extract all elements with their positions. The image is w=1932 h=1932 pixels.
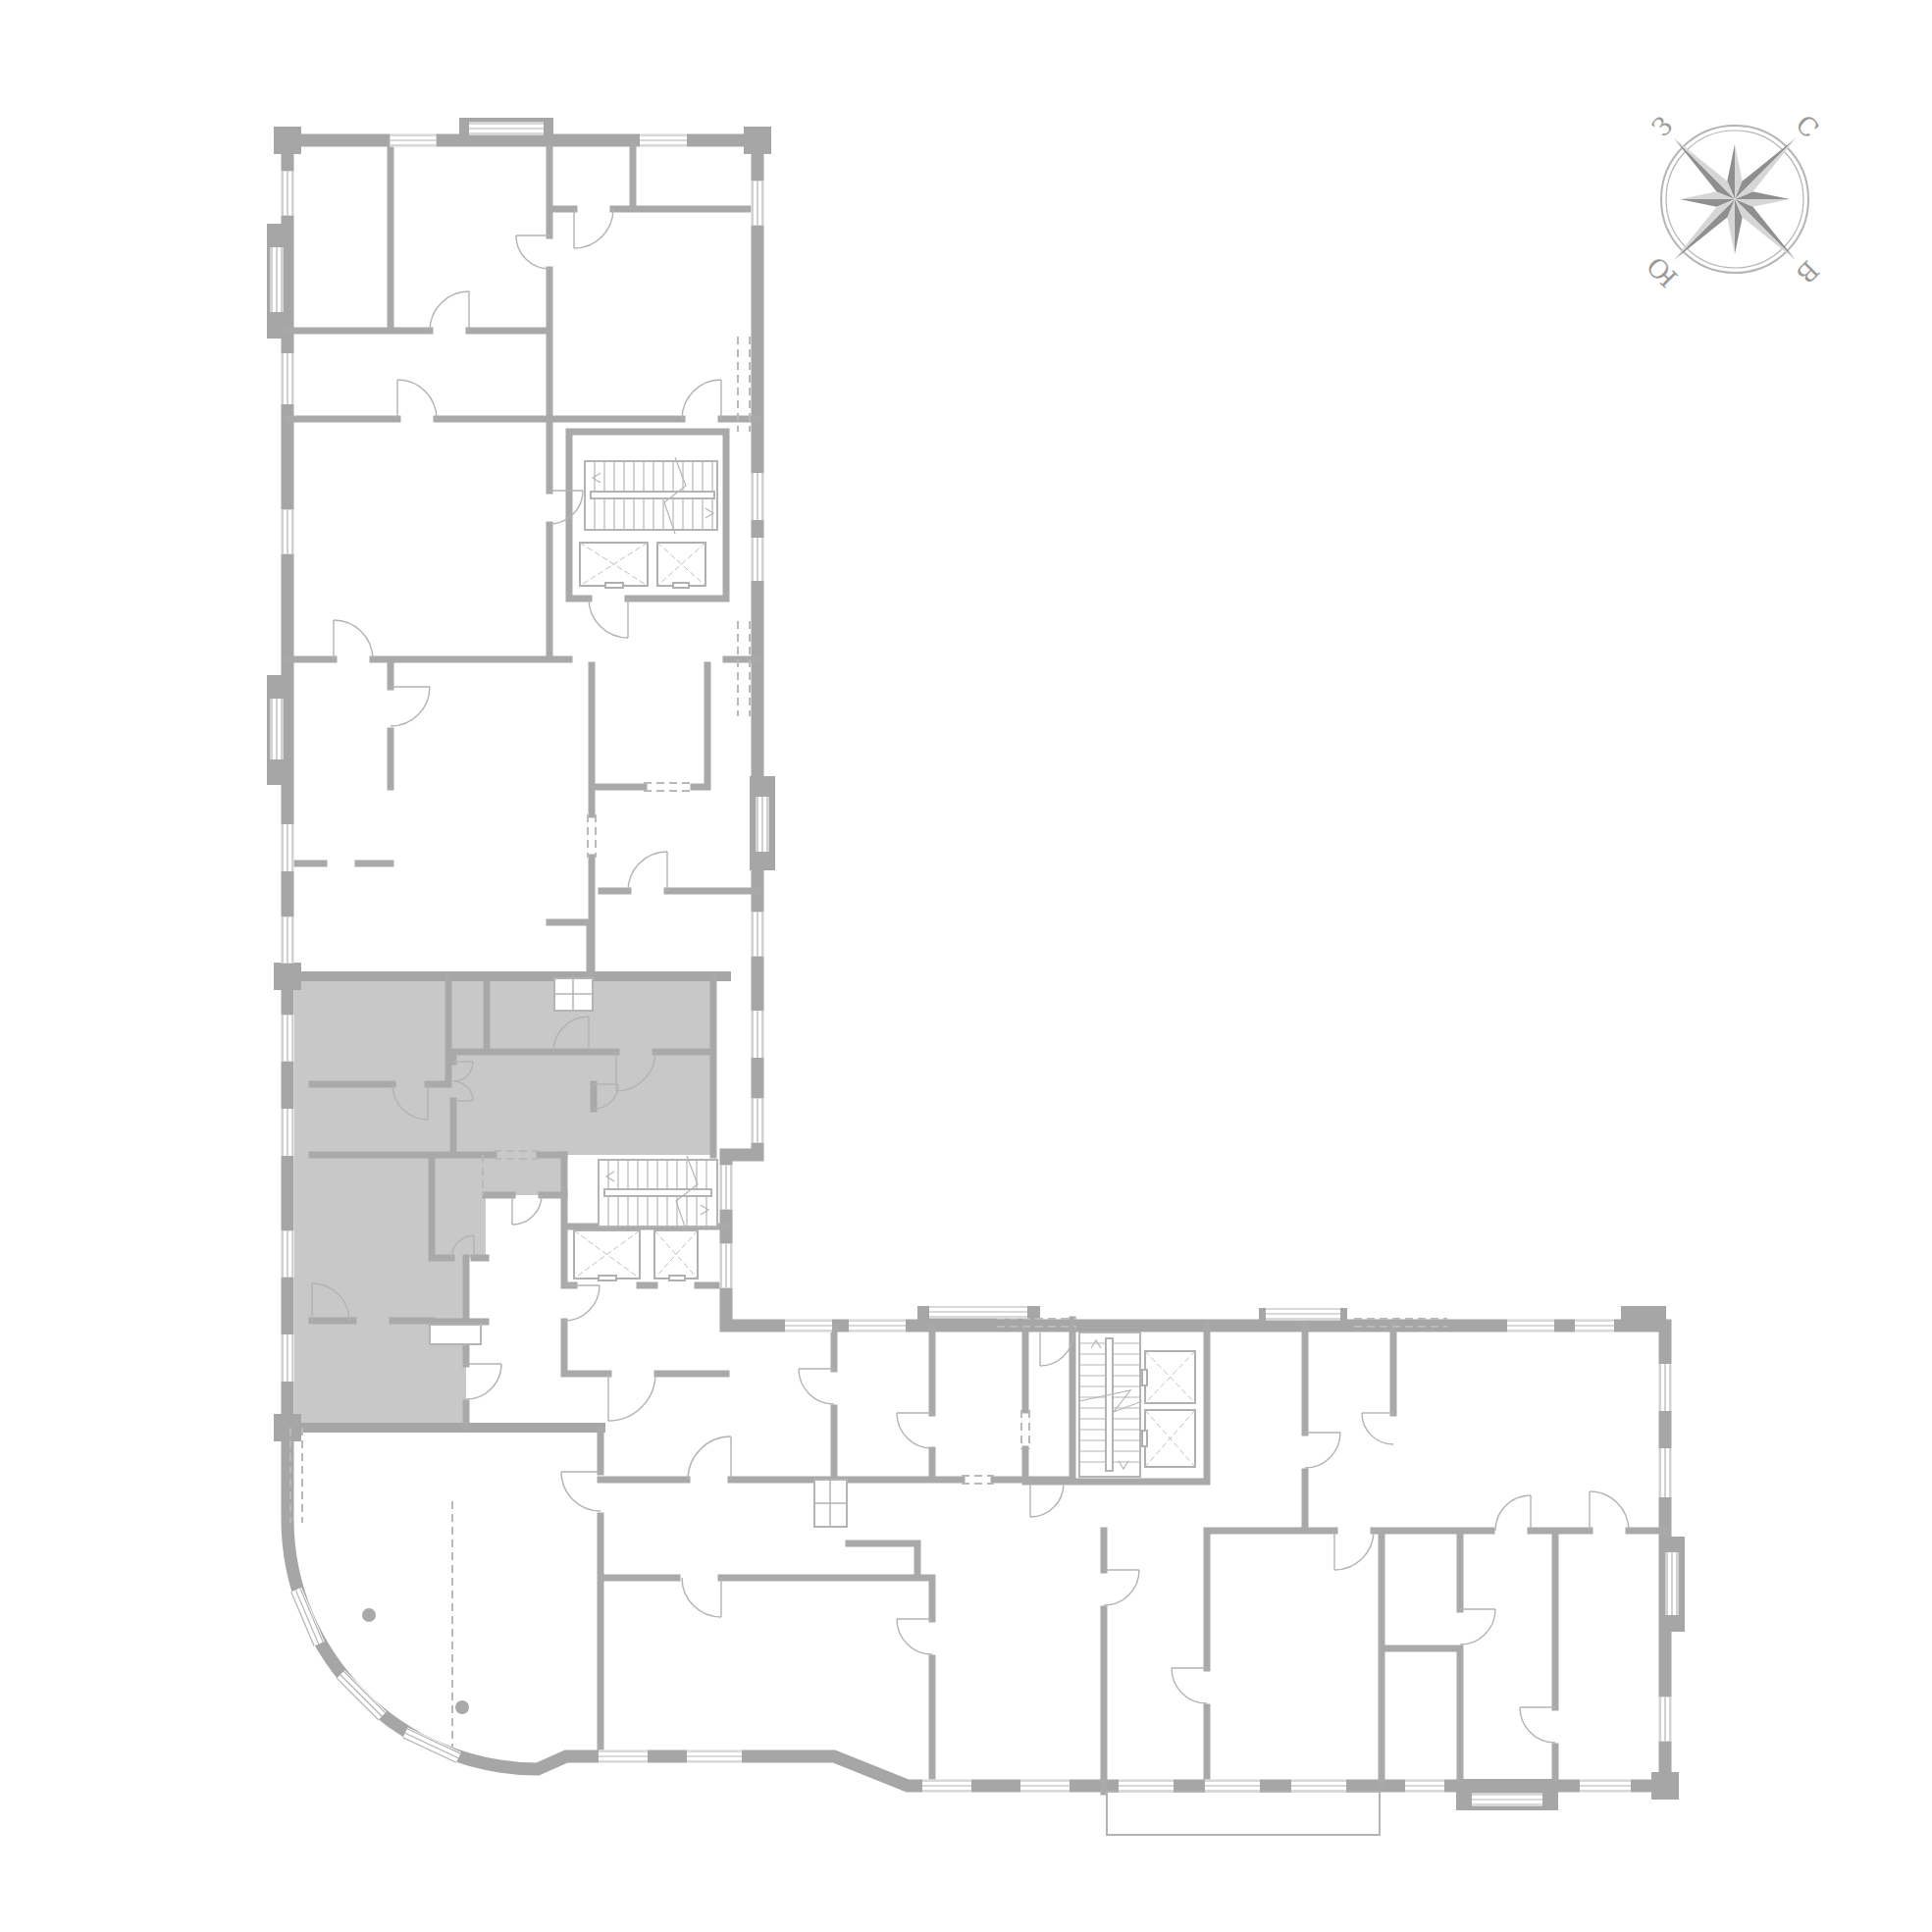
- stair-core-middle: [599, 1156, 717, 1232]
- exterior-walls: [267, 118, 1685, 1810]
- stair-core-south: [1079, 1332, 1142, 1477]
- compass-label-west: З: [1646, 111, 1679, 143]
- interior-walls: [287, 147, 1665, 1792]
- elevator-icon: [657, 543, 705, 588]
- compass-star-icon: [1674, 138, 1796, 260]
- elevator-icon: [1142, 1410, 1195, 1467]
- elevator-icon: [574, 1230, 640, 1280]
- stair-core-north: [585, 457, 717, 534]
- balcony: [1107, 1792, 1380, 1835]
- windows: [271, 123, 1679, 1806]
- compass-star: [1674, 138, 1796, 260]
- compass-rose: С В Ю З: [1641, 109, 1824, 292]
- elevator-icon: [1142, 1351, 1195, 1403]
- elevator-icon: [654, 1230, 698, 1280]
- floor-plan-page: С В Ю З: [0, 0, 1932, 1932]
- facade-bays: [267, 118, 1685, 1810]
- floor-plan: С В Ю З: [0, 0, 1932, 1932]
- elevator-icon: [580, 543, 648, 588]
